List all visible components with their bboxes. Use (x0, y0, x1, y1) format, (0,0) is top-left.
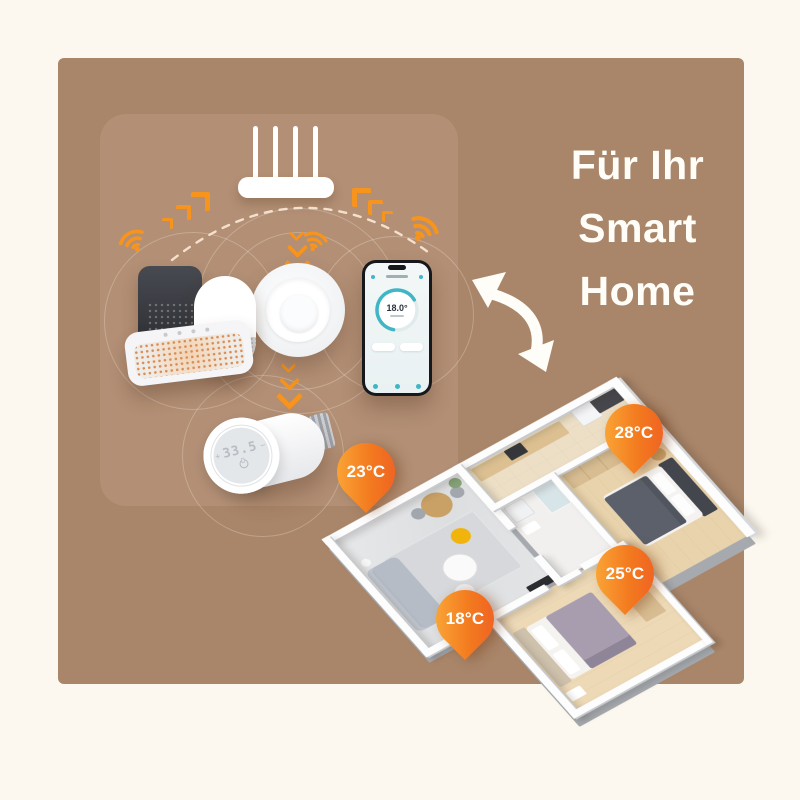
chevron-icon (368, 200, 383, 215)
curved-swap-arrow-icon (462, 264, 574, 376)
valve-display-digits: 33.5 (221, 439, 259, 462)
smartphone: 18.0° (362, 260, 432, 396)
gateway-button (280, 294, 318, 332)
temp-badge-living: 23°C (337, 443, 395, 521)
map-pin-icon: 23°C (325, 431, 407, 513)
router-antenna (253, 126, 258, 180)
router-antenna (273, 126, 278, 180)
app-header (371, 274, 423, 279)
app-screen: 18.0° (365, 263, 429, 393)
dial-temperature: 18.0° (374, 287, 420, 333)
chevron-icon (162, 218, 173, 229)
power-icon (238, 458, 249, 469)
router-antenna (293, 126, 298, 180)
temp-badge-second-bedroom: 18°C (436, 590, 494, 668)
mode-button[interactable] (372, 343, 395, 351)
phone-notch (388, 265, 406, 270)
map-pin-icon: 28°C (593, 392, 675, 474)
headline-line-1: Für Ihr (540, 134, 735, 197)
mode-button[interactable] (400, 343, 423, 351)
app-nav-bar (373, 384, 421, 389)
headline-line-2: Smart (540, 197, 735, 260)
chevron-icon (191, 192, 210, 211)
temp-badge-label: 18°C (436, 590, 494, 648)
thermostat-dial: 18.0° (374, 287, 420, 333)
map-pin-icon: 25°C (584, 533, 666, 615)
router-antenna (313, 126, 318, 180)
nav-scenes-icon[interactable] (395, 384, 400, 389)
nav-home-icon[interactable] (373, 384, 378, 389)
map-pin-icon: 18°C (424, 578, 506, 660)
temp-badge-label: 23°C (337, 443, 395, 501)
valve-screen: + 33.5 − (208, 422, 276, 490)
temp-badge-kitchen: 28°C (605, 404, 663, 482)
speaker-grille (133, 331, 246, 379)
signal-chevrons-left (162, 192, 208, 234)
app-title-placeholder (386, 275, 408, 278)
chevron-icon (176, 205, 191, 220)
dial-sublabel (390, 315, 404, 317)
gateway-hub (251, 263, 345, 357)
temp-badge-label: 25°C (596, 545, 654, 603)
signal-chevrons-right (352, 188, 398, 230)
marketing-image: Für Ihr Smart Home (0, 0, 800, 800)
valve-plus-label: + (214, 450, 222, 461)
nav-profile-icon[interactable] (416, 384, 421, 389)
valve-minus-label: − (259, 439, 267, 450)
temperature-value: 18.0° (386, 303, 407, 313)
temp-badge-label: 28°C (605, 404, 663, 462)
back-icon (371, 275, 375, 279)
app-mode-buttons (365, 343, 429, 351)
chevron-icon (382, 211, 393, 222)
temp-badge-bedroom: 25°C (596, 545, 654, 623)
settings-icon (419, 275, 423, 279)
